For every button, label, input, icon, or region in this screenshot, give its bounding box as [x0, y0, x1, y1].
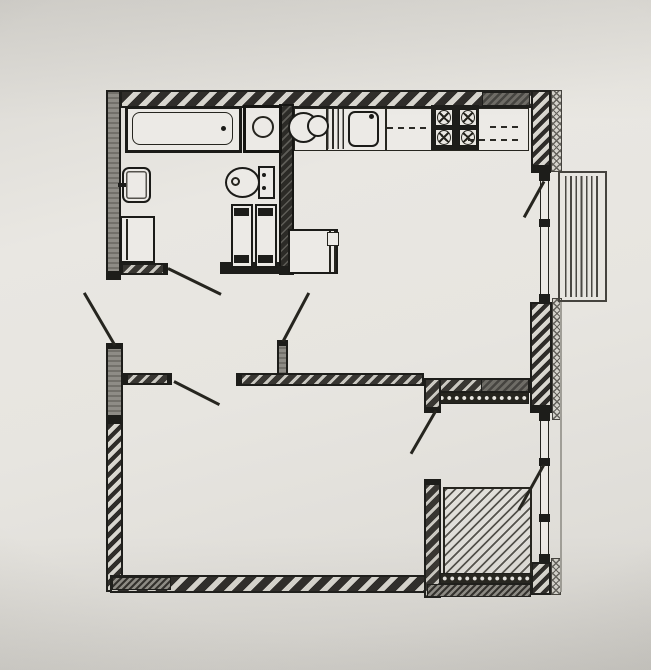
hall-wall-b-cap [236, 373, 242, 386]
wall-left-pier [106, 343, 123, 422]
bathroom-bottom-wall [121, 263, 167, 275]
wall-top-dark-block [482, 92, 530, 106]
living-room-door-leaf [173, 380, 220, 406]
wall-left-upper [106, 90, 121, 273]
glazing-cap [539, 219, 550, 227]
upper-cabinet-dash [468, 139, 520, 141]
balcony-decking [565, 176, 601, 297]
burner-icon [437, 110, 451, 125]
storage-wall-bottom [427, 584, 531, 597]
washer-cabinet-line [126, 219, 128, 260]
toilet-tank-dot [262, 173, 266, 177]
glazing-cap [539, 514, 550, 522]
burner-icon [461, 110, 475, 125]
hall-wall-a-cap-left [123, 373, 128, 385]
glazing-cap [539, 294, 550, 302]
entrance-door-leaf [83, 292, 116, 346]
toilet-tank-dot [262, 186, 266, 190]
storage-left-door-leaf [410, 410, 438, 455]
hand-basin-bowl [307, 115, 329, 137]
upper-cabinet-dash [387, 127, 429, 129]
storage-top-dark-block [481, 379, 529, 392]
wall-right-mid [530, 302, 552, 407]
wall-right-upper-cap [531, 166, 551, 173]
counter-divider [385, 108, 387, 151]
burner-icon [461, 130, 475, 145]
glazing-cap [539, 554, 550, 562]
tall-unit-cap [234, 208, 249, 216]
toilet-flush-icon [231, 177, 240, 186]
hall-wall-b [236, 373, 424, 386]
hall-wall-a [123, 373, 172, 385]
bathtub-drain [221, 126, 226, 131]
kitchen-faucet [369, 114, 374, 119]
tall-unit-cap [258, 255, 273, 263]
upper-cabinet-dash [490, 126, 520, 128]
washing-machine-drum-icon [252, 116, 274, 138]
floor-plan [0, 0, 651, 670]
bathtub-inner [132, 112, 233, 145]
wall-bottom-dark-block [112, 577, 171, 590]
glazing-cap [539, 413, 550, 421]
storage-hatched-area [443, 487, 532, 575]
balcony-door-glazing [540, 173, 549, 302]
wall-right-upper [531, 90, 551, 167]
wall-left-upper-cap [106, 273, 121, 280]
bathroom-door-leaf [167, 267, 221, 296]
storage-insulation-top [437, 392, 529, 404]
washbasin-tap [118, 183, 126, 187]
washbasin [122, 167, 151, 203]
burner-icon [437, 130, 451, 145]
drainboard [327, 109, 347, 149]
storage-left-wall-lower [424, 479, 441, 598]
wall-right-upper-outer [551, 90, 562, 172]
wall-left-lower [106, 422, 123, 592]
tall-unit-cap [258, 208, 273, 216]
storage-insulation-bottom [440, 573, 531, 584]
storage-left-wall-lower-cap [424, 479, 441, 485]
kitchen-door-leaf [282, 292, 310, 342]
glazing-cap [539, 173, 550, 181]
facade-line [560, 302, 562, 592]
hall-wall-a-cap-right [167, 373, 172, 385]
toilet-tank [258, 166, 275, 199]
tall-unit-cap [234, 255, 249, 263]
wall-right-lower [531, 562, 551, 595]
wall-left-pier-cap-bottom [106, 415, 123, 422]
kitchen-sink [348, 111, 379, 147]
fridge-hinge [327, 232, 339, 246]
storage-window-glazing [540, 413, 549, 562]
